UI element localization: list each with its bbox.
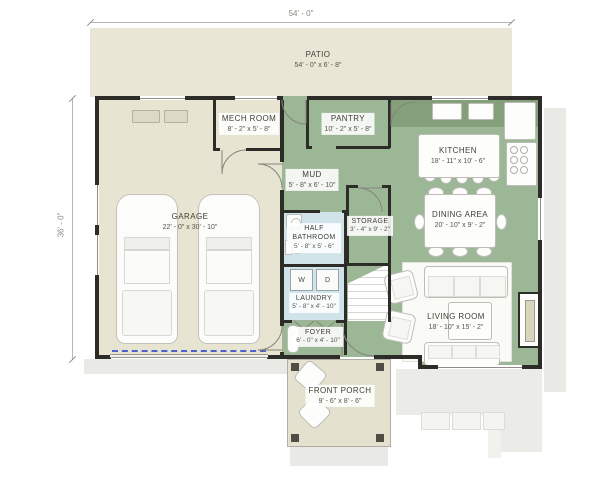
room-label-laundry: LAUNDRY 5' - 8" x 4' - 10"	[289, 293, 339, 313]
storage-dims: 3' - 4" x 9' - 2"	[350, 226, 390, 235]
room-label-storage: STORAGE 3' - 4" x 9' - 2"	[347, 216, 393, 236]
laundry-dims: 5' - 8" x 4' - 10"	[292, 303, 336, 312]
dining-area-name: DINING AREA	[432, 210, 488, 221]
pantry-dims: 10' - 2" x 5' - 8"	[325, 125, 372, 134]
dining-area-dims: 20' - 10" x 9' - 2"	[432, 221, 488, 230]
laundry-name: LAUNDRY	[292, 294, 336, 303]
garage-name: GARAGE	[163, 212, 218, 223]
garage-dims: 22' - 0" x 30' - 10"	[163, 223, 218, 232]
room-label-living-room: LIVING ROOM 18' - 10" x 15' - 2"	[427, 312, 485, 332]
door-arc-storage	[358, 188, 382, 212]
mud-dims: 5' - 8" x 6' - 10"	[289, 181, 336, 190]
foyer-dims: 6' - 0" x 4' - 10"	[296, 337, 340, 346]
kitchen-dims: 18' - 11" x 10' - 6"	[431, 157, 485, 166]
storage-name: STORAGE	[350, 217, 390, 226]
pantry-name: PANTRY	[325, 114, 372, 125]
door-arc-patio	[282, 100, 306, 124]
foyer-name: FOYER	[296, 328, 340, 337]
room-label-pantry: PANTRY 10' - 2" x 5' - 8"	[322, 113, 375, 135]
room-label-mech-room: MECH ROOM 8' - 2" x 5' - 8"	[219, 113, 279, 135]
room-label-garage: GARAGE 22' - 0" x 30' - 10"	[163, 212, 218, 232]
door-arc-garage-foyer	[258, 326, 282, 350]
living-room-name: LIVING ROOM	[427, 312, 485, 323]
front-porch-name: FRONT PORCH	[309, 386, 372, 397]
mud-name: MUD	[289, 170, 336, 181]
mech-room-dims: 8' - 2" x 5' - 8"	[222, 125, 276, 134]
patio-dims: 54' - 0" x 6' - 8"	[295, 61, 342, 70]
mech-room-name: MECH ROOM	[222, 114, 276, 125]
door-arc-front-door	[342, 324, 374, 356]
living-room-dims: 18' - 10" x 15' - 2"	[427, 323, 485, 332]
door-arc-mech	[222, 150, 246, 174]
room-label-foyer: FOYER 6' - 0" x 4' - 10"	[293, 327, 343, 347]
room-label-front-porch: FRONT PORCH 9' - 6" x 8' - 6"	[306, 385, 375, 407]
room-label-half-bathroom: HALF BATHROOM 5' - 8" x 5' - 6"	[287, 223, 341, 253]
kitchen-name: KITCHEN	[431, 146, 485, 157]
patio-name: PATIO	[295, 50, 342, 61]
door-arc-garage-mud	[258, 164, 282, 188]
door-arc-pantry-kitchen	[391, 102, 415, 126]
room-label-dining-area: DINING AREA 20' - 10" x 9' - 2"	[432, 210, 488, 230]
half-bathroom-name: HALF BATHROOM	[290, 224, 338, 243]
dimension-line-left	[72, 98, 73, 360]
dimension-top-label: 54' - 0"	[289, 9, 314, 18]
room-label-kitchen: KITCHEN 18' - 11" x 10' - 6"	[431, 146, 485, 166]
front-porch-dims: 9' - 6" x 8' - 6"	[309, 397, 372, 406]
dimension-left-label: 36' - 0"	[57, 213, 66, 238]
room-label-mud: MUD 5' - 8" x 6' - 10"	[286, 169, 339, 191]
room-label-patio: PATIO 54' - 0" x 6' - 8"	[295, 50, 342, 70]
floor-plan: W D	[0, 0, 600, 479]
dimension-line-top	[90, 22, 512, 23]
half-bathroom-dims: 5' - 8" x 5' - 6"	[290, 243, 338, 252]
